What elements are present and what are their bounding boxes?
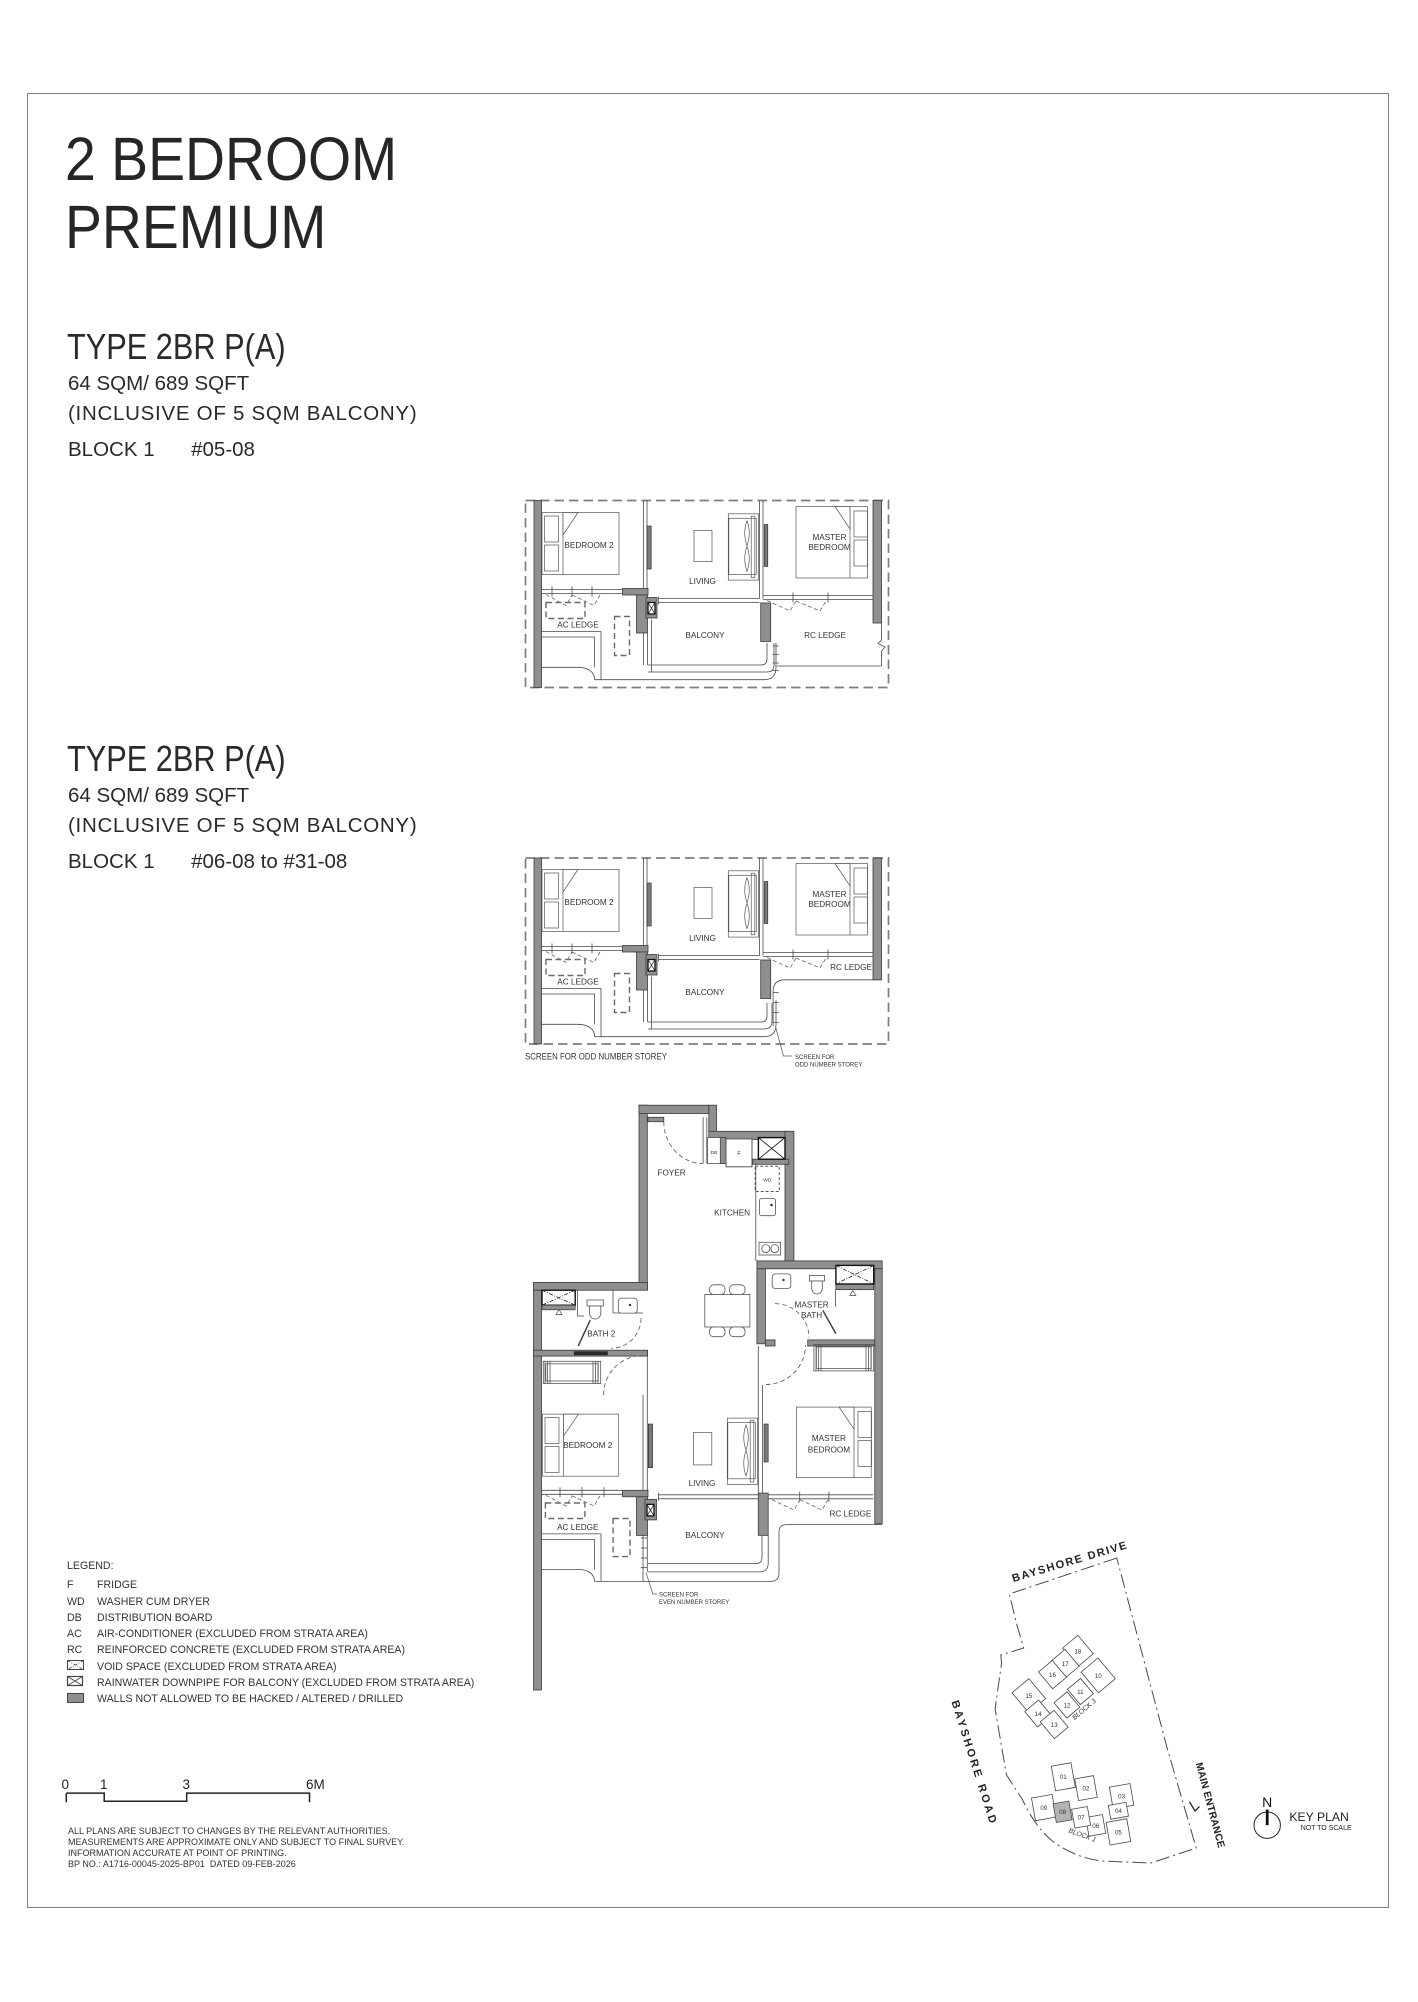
svg-text:MASTER: MASTER — [812, 890, 846, 899]
svg-text:14: 14 — [1035, 1711, 1042, 1718]
svg-text:DB: DB — [711, 1150, 718, 1156]
svg-text:KITCHEN: KITCHEN — [714, 1209, 750, 1218]
svg-text:WD: WD — [763, 1178, 772, 1184]
svg-text:09: 09 — [1040, 1805, 1047, 1812]
svg-text:MASTER: MASTER — [812, 533, 846, 542]
svg-text:SCREEN FOR: SCREEN FOR — [659, 1593, 699, 1599]
svg-text:10: 10 — [1095, 1673, 1102, 1680]
svg-text:11: 11 — [1077, 1689, 1084, 1696]
svg-text:BALCONY: BALCONY — [685, 631, 725, 640]
svg-text:AC LEDGE: AC LEDGE — [557, 621, 599, 630]
svg-text:BEDROOM: BEDROOM — [808, 1445, 850, 1454]
svg-text:04: 04 — [1115, 1808, 1122, 1815]
svg-text:BEDROOM 2: BEDROOM 2 — [564, 541, 614, 550]
svg-text:6M: 6M — [306, 1777, 325, 1792]
svg-text:01: 01 — [1060, 1774, 1067, 1781]
svg-text:BEDROOM 2: BEDROOM 2 — [563, 1441, 613, 1450]
svg-text:BALCONY: BALCONY — [685, 988, 725, 997]
svg-text:AC LEDGE: AC LEDGE — [557, 978, 599, 987]
svg-text:ODD NUMBER STOREY: ODD NUMBER STOREY — [795, 1063, 862, 1069]
svg-text:N: N — [1262, 1794, 1272, 1810]
svg-text:RC LEDGE: RC LEDGE — [829, 1509, 871, 1518]
svg-text:BEDROOM: BEDROOM — [808, 543, 850, 552]
svg-text:16: 16 — [1049, 1672, 1056, 1679]
svg-text:BEDROOM 2: BEDROOM 2 — [564, 898, 614, 907]
svg-text:06: 06 — [1092, 1823, 1099, 1830]
svg-text:F: F — [737, 1151, 740, 1157]
svg-text:15: 15 — [1025, 1693, 1032, 1700]
svg-text:BAYSHORE DRIVE: BAYSHORE DRIVE — [1011, 1539, 1130, 1585]
svg-text:RC LEDGE: RC LEDGE — [804, 631, 846, 640]
svg-text:13: 13 — [1051, 1722, 1058, 1729]
svg-text:08: 08 — [1059, 1809, 1066, 1816]
svg-text:3: 3 — [183, 1777, 191, 1792]
svg-text:EVEN NUMBER STOREY: EVEN NUMBER STOREY — [659, 1600, 729, 1606]
svg-text:1: 1 — [100, 1777, 108, 1792]
svg-text:LIVING: LIVING — [689, 934, 716, 943]
svg-text:MASTER: MASTER — [812, 1434, 846, 1443]
svg-text:02: 02 — [1083, 1786, 1090, 1793]
svg-text:12: 12 — [1063, 1702, 1070, 1709]
svg-text:LIVING: LIVING — [689, 577, 716, 586]
svg-text:17: 17 — [1062, 1661, 1069, 1668]
svg-text:NOT TO SCALE: NOT TO SCALE — [1301, 1825, 1352, 1832]
svg-text:RC LEDGE: RC LEDGE — [830, 963, 872, 972]
svg-text:MASTER: MASTER — [795, 1301, 829, 1310]
svg-text:KEY PLAN: KEY PLAN — [1289, 1810, 1348, 1824]
svg-text:MAIN ENTRANCE: MAIN ENTRANCE — [1193, 1761, 1226, 1849]
svg-text:18: 18 — [1074, 1648, 1081, 1655]
svg-text:LIVING: LIVING — [689, 1479, 716, 1488]
svg-text:BEDROOM: BEDROOM — [808, 900, 850, 909]
svg-text:BATH 2: BATH 2 — [587, 1330, 616, 1339]
svg-text:05: 05 — [1115, 1829, 1122, 1836]
svg-text:BATH: BATH — [801, 1311, 822, 1320]
svg-text:FOYER: FOYER — [657, 1169, 685, 1178]
svg-text:SCREEN FOR: SCREEN FOR — [795, 1055, 835, 1061]
svg-text:07: 07 — [1078, 1815, 1085, 1822]
svg-text:AC LEDGE: AC LEDGE — [557, 1523, 599, 1532]
svg-text:03: 03 — [1118, 1794, 1125, 1801]
svg-text:BAYSHORE ROAD: BAYSHORE ROAD — [949, 1699, 1000, 1827]
svg-text:0: 0 — [62, 1777, 70, 1792]
svg-text:BALCONY: BALCONY — [685, 1531, 725, 1540]
svg-text:SCREEN FOR ODD NUMBER STOREY: SCREEN FOR ODD NUMBER STOREY — [525, 1052, 667, 1062]
